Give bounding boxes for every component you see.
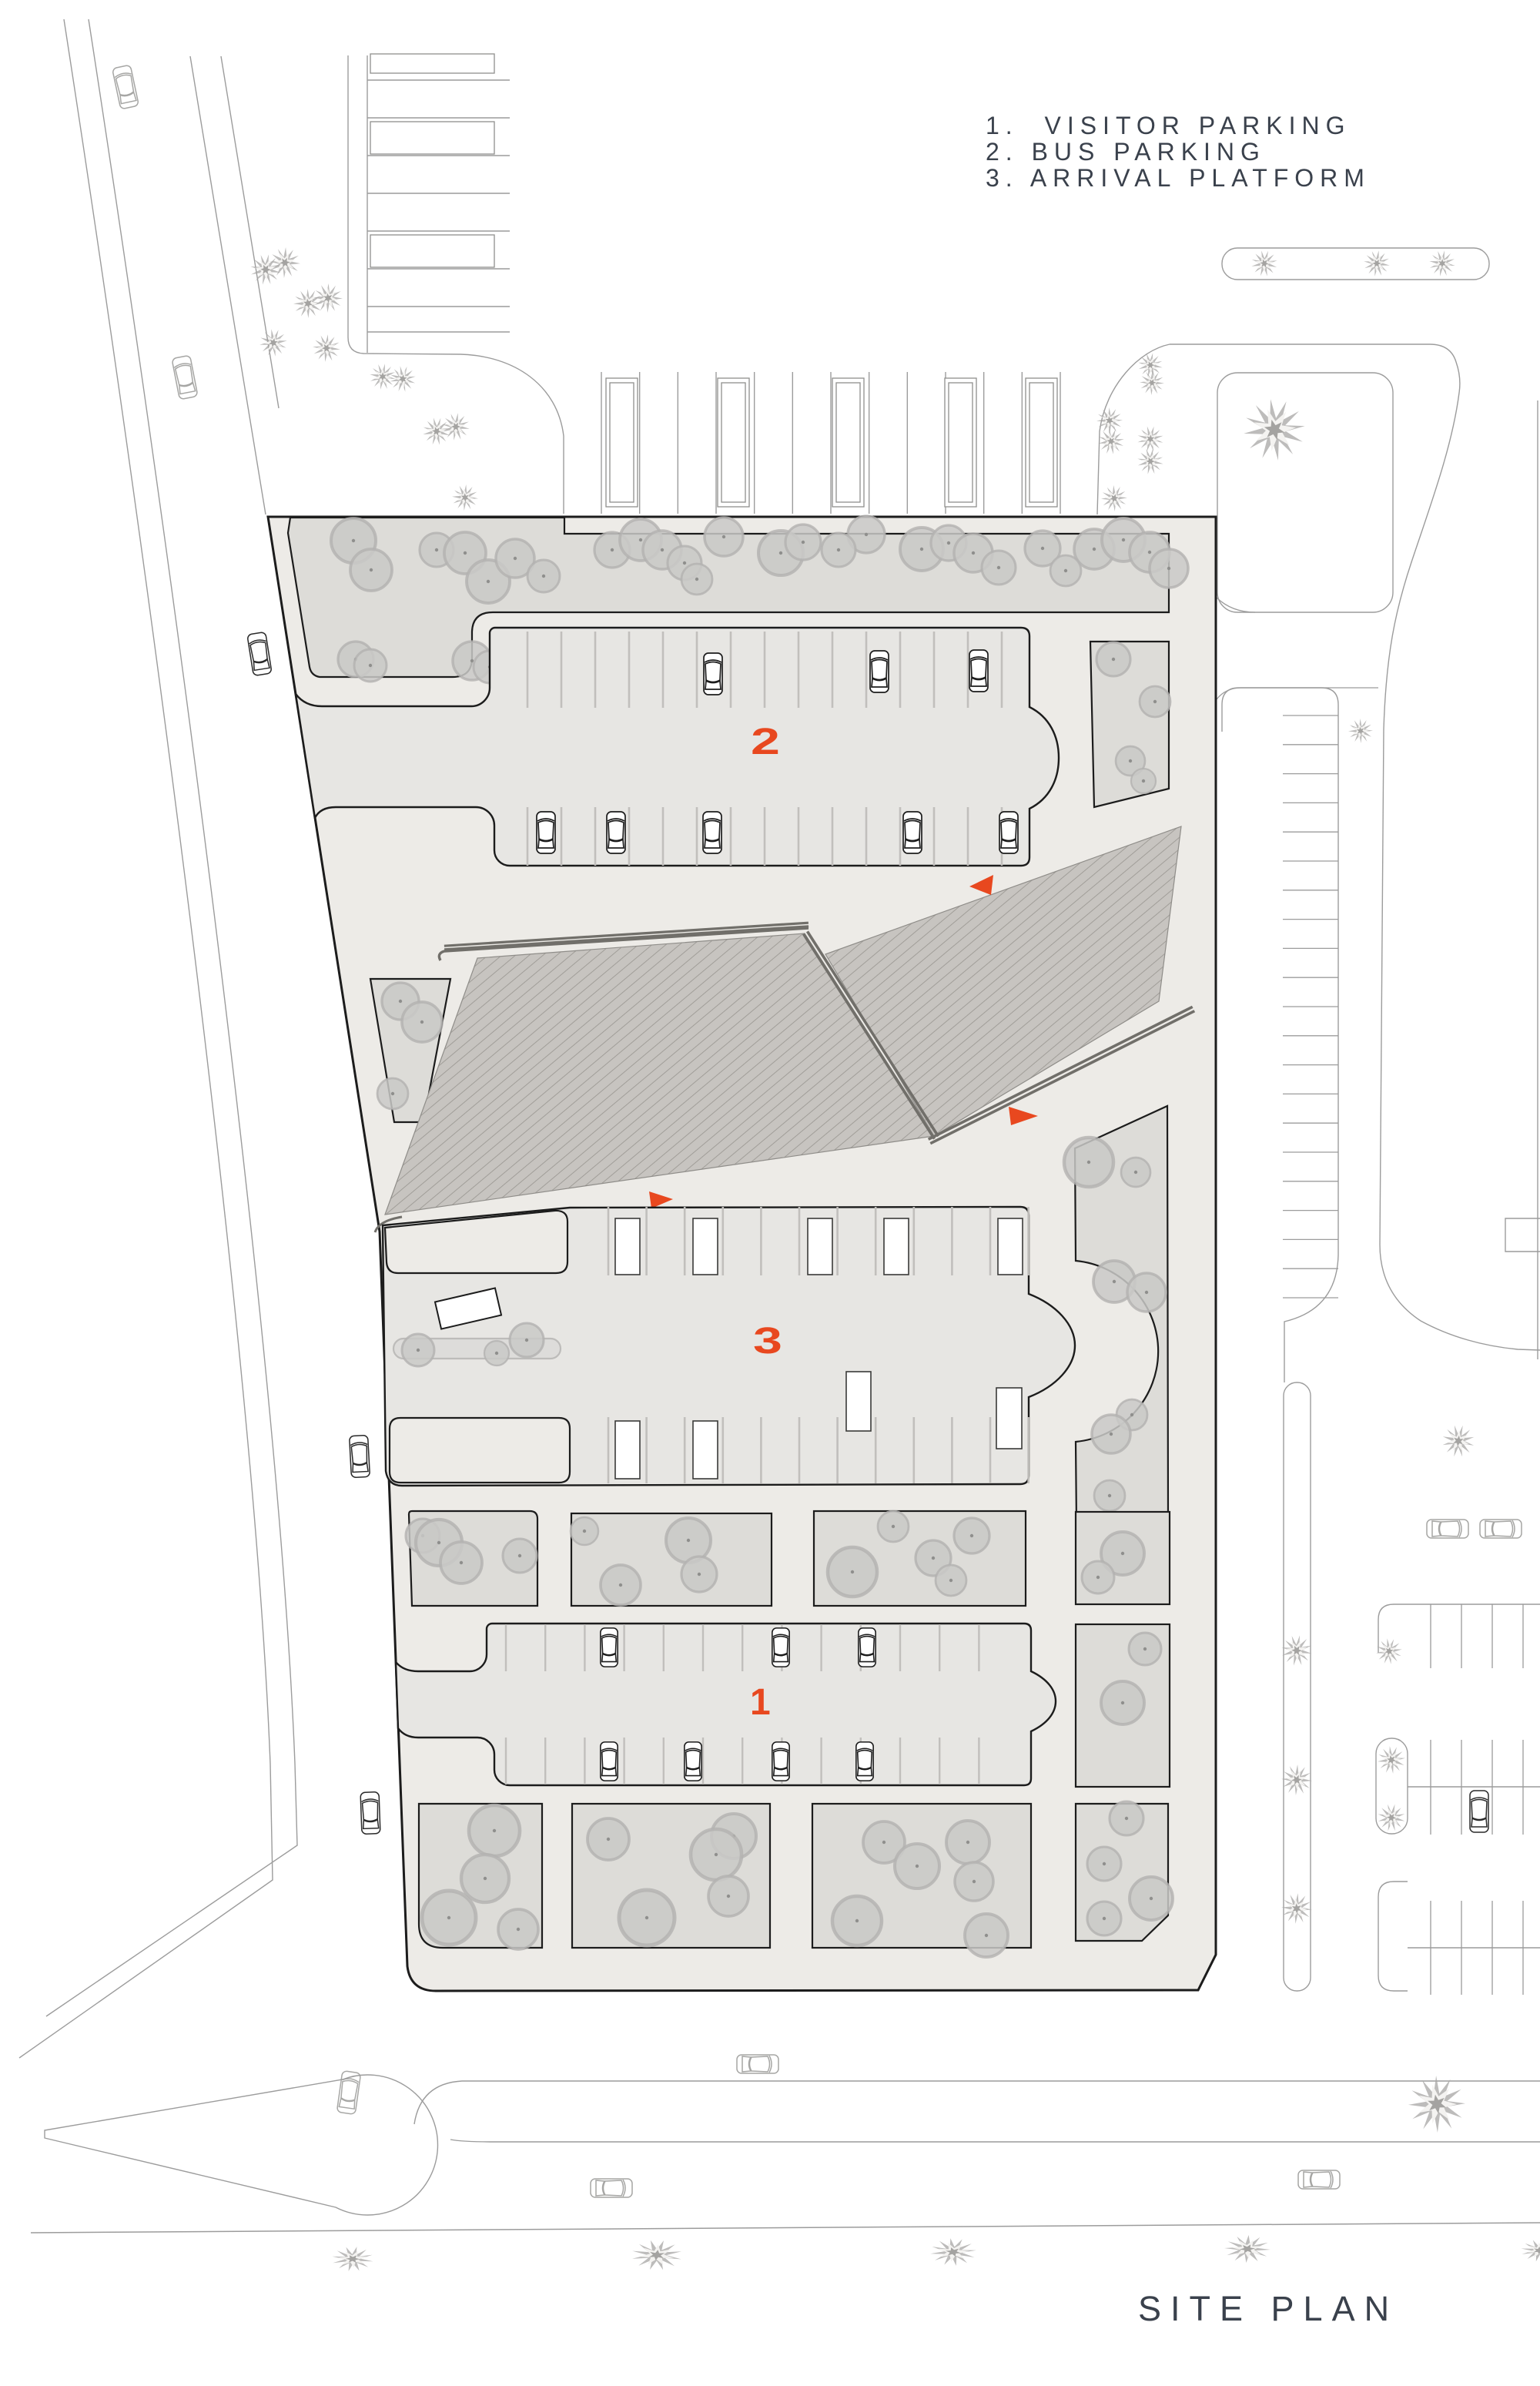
svg-text:3. ARRIVAL PLATFORM: 3. ARRIVAL PLATFORM (986, 164, 1371, 192)
svg-text:3: 3 (753, 1321, 782, 1362)
svg-text:2. BUS PARKING: 2. BUS PARKING (986, 138, 1266, 166)
svg-text:SITE PLAN: SITE PLAN (1138, 2289, 1398, 2328)
svg-text:1. VISITOR PARKING: 1. VISITOR PARKING (986, 112, 1351, 139)
svg-text:2: 2 (751, 722, 780, 762)
svg-text:1: 1 (750, 1682, 771, 1723)
